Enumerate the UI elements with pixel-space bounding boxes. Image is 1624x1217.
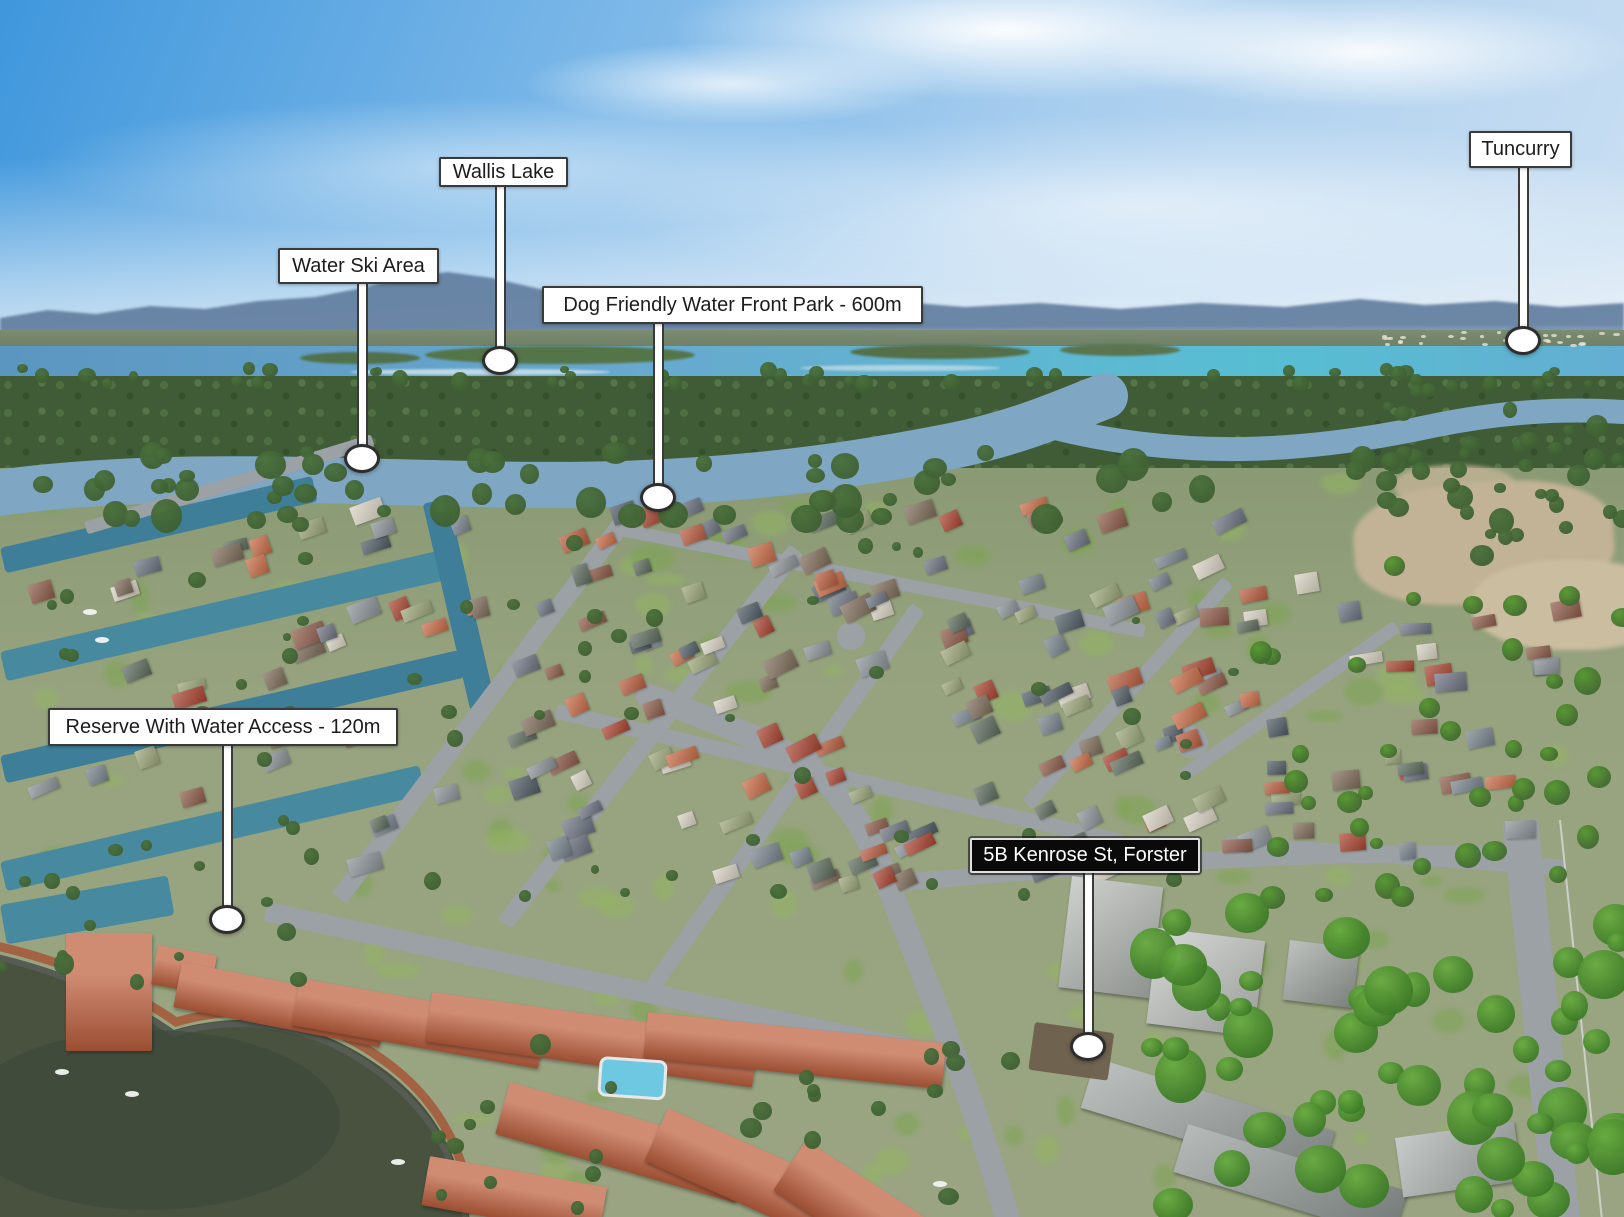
scene-shape — [1331, 769, 1360, 791]
scene-shape — [1519, 432, 1537, 448]
scene-shape — [1557, 341, 1563, 344]
scene-shape — [1391, 886, 1414, 907]
scene-shape — [1411, 719, 1438, 735]
scene-shape — [272, 476, 293, 496]
scene-shape — [54, 953, 74, 975]
callout-stem — [1518, 165, 1529, 344]
scene-shape — [1222, 838, 1253, 853]
scene-shape — [1338, 1090, 1363, 1114]
scene-shape — [1380, 744, 1397, 758]
scene-shape — [302, 454, 323, 475]
scene-shape — [666, 870, 678, 881]
scene-shape — [1031, 504, 1062, 534]
callout-label-box: Dog Friendly Water Front Park - 600m — [542, 286, 923, 324]
scene-shape — [624, 707, 639, 721]
scene-shape — [1578, 950, 1624, 999]
scene-shape — [1141, 1038, 1163, 1057]
callout-stem — [653, 321, 664, 501]
scene-shape — [44, 873, 59, 889]
scene-shape — [1337, 791, 1362, 813]
scene-shape — [1162, 1037, 1189, 1061]
callout-label: Wallis Lake — [453, 161, 555, 184]
scene-shape — [1250, 641, 1272, 664]
scene-shape — [1512, 778, 1535, 800]
scene-shape — [1199, 607, 1229, 627]
scene-shape — [794, 767, 812, 784]
scene-shape — [696, 455, 712, 471]
scene-shape — [141, 840, 152, 851]
scene-shape — [1491, 1199, 1514, 1217]
callout-label: Reserve With Water Access - 120m — [66, 716, 381, 739]
scene-shape — [1026, 367, 1043, 383]
scene-shape — [60, 589, 74, 604]
scene-shape — [725, 714, 734, 722]
scene-shape — [1549, 866, 1567, 884]
scene-shape — [1397, 761, 1424, 775]
scene-shape — [1216, 1057, 1242, 1081]
scene-shape — [1574, 667, 1601, 695]
scene-shape — [844, 376, 855, 386]
scene-shape — [472, 483, 492, 504]
scene-shape — [1433, 956, 1473, 993]
scene-shape — [1460, 505, 1474, 520]
scene-shape — [1505, 740, 1522, 759]
scene-shape — [282, 648, 298, 664]
scene-shape — [1239, 971, 1263, 990]
scene-detail-layer — [0, 0, 1624, 1217]
scene-shape — [1603, 505, 1616, 519]
scene-shape — [933, 1181, 947, 1187]
scene-shape — [1527, 1113, 1554, 1135]
scene-shape — [576, 487, 607, 518]
scene-shape — [519, 890, 531, 902]
scene-shape — [1049, 368, 1062, 382]
scene-shape — [1483, 376, 1498, 391]
scene-shape — [1292, 745, 1309, 763]
callout-label: 5B Kenrose St, Forster — [983, 844, 1186, 867]
scene-shape — [231, 376, 243, 386]
callout-stem — [1083, 870, 1094, 1050]
scene-shape — [883, 493, 897, 506]
callout-marker — [1070, 1032, 1106, 1061]
scene-shape — [194, 861, 205, 870]
scene-shape — [460, 600, 473, 614]
scene-shape — [946, 1054, 965, 1071]
callout-marker — [344, 444, 380, 473]
scene-shape — [1544, 780, 1570, 805]
scene-shape — [1228, 668, 1238, 677]
scene-shape — [740, 1118, 761, 1138]
callout-stem — [495, 184, 506, 364]
scene-shape — [505, 494, 526, 515]
scene-shape — [179, 470, 195, 483]
scene-shape — [1611, 608, 1624, 626]
scene-shape — [597, 1056, 668, 1101]
scene-shape — [1370, 838, 1383, 849]
scene-shape — [19, 876, 30, 887]
scene-shape — [560, 366, 568, 373]
scene-shape — [324, 463, 347, 482]
scene-shape — [1315, 888, 1333, 902]
scene-shape — [436, 1189, 447, 1201]
scene-shape — [66, 933, 152, 1051]
scene-shape — [1534, 656, 1559, 675]
scene-shape — [589, 1149, 603, 1164]
scene-shape — [808, 454, 823, 468]
scene-shape — [1400, 623, 1432, 635]
scene-shape — [1386, 661, 1414, 673]
scene-shape — [391, 1159, 405, 1165]
scene-shape — [611, 629, 626, 644]
scene-shape — [618, 504, 645, 528]
scene-shape — [243, 362, 255, 375]
scene-shape — [1559, 586, 1580, 606]
scene-shape — [1348, 657, 1366, 672]
scene-shape — [1566, 335, 1571, 338]
scene-shape — [94, 470, 115, 491]
scene-shape — [1031, 682, 1047, 696]
scene-shape — [1472, 1093, 1512, 1127]
scene-shape — [1570, 344, 1576, 347]
callout-label-box: Wallis Lake — [439, 157, 568, 187]
scene-shape — [1477, 1137, 1525, 1180]
scene-shape — [646, 609, 663, 627]
callout-label-box: 5B Kenrose St, Forster — [970, 838, 1200, 873]
scene-shape — [1505, 820, 1536, 839]
scene-shape — [392, 370, 408, 387]
callout-marker — [640, 483, 676, 512]
scene-shape — [807, 596, 818, 605]
scene-shape — [591, 865, 600, 874]
scene-shape — [1293, 823, 1314, 839]
callout-stem — [357, 281, 368, 462]
scene-shape — [125, 1091, 139, 1097]
scene-shape — [1446, 380, 1458, 391]
scene-shape — [924, 1048, 940, 1065]
scene-shape — [894, 830, 909, 843]
callout-label-box: Reserve With Water Access - 120m — [48, 708, 398, 746]
scene-shape — [1396, 446, 1412, 459]
scene-shape — [1153, 1188, 1193, 1217]
scene-shape — [484, 1176, 497, 1189]
scene-shape — [47, 600, 56, 610]
scene-shape — [1180, 771, 1190, 779]
scene-shape — [1503, 402, 1517, 417]
scene-shape — [530, 1034, 550, 1055]
scene-shape — [35, 368, 49, 383]
scene-shape — [1470, 545, 1494, 565]
scene-shape — [236, 679, 247, 690]
scene-shape — [1611, 453, 1624, 465]
scene-shape — [1559, 521, 1573, 534]
scene-shape — [1577, 825, 1599, 849]
scene-shape — [1292, 376, 1308, 391]
scene-shape — [713, 505, 736, 524]
scene-shape — [1265, 801, 1294, 814]
scene-shape — [1584, 448, 1605, 469]
scene-shape — [1513, 1036, 1538, 1062]
aerial-photo-stage: Wallis Lake Water Ski Area Dog Friendly … — [0, 0, 1624, 1217]
scene-shape — [480, 1100, 496, 1114]
scene-shape — [345, 480, 364, 500]
scene-shape — [1416, 642, 1437, 660]
scene-shape — [55, 1069, 69, 1075]
scene-shape — [151, 479, 167, 494]
scene-shape — [278, 815, 289, 826]
scene-shape — [294, 484, 317, 503]
scene-shape — [831, 453, 859, 478]
scene-shape — [1337, 600, 1361, 622]
scene-shape — [83, 609, 97, 615]
scene-shape — [1587, 766, 1611, 788]
scene-shape — [1599, 332, 1606, 335]
scene-shape — [1434, 672, 1467, 694]
scene-shape — [1556, 704, 1577, 726]
scene-shape — [1469, 787, 1491, 807]
scene-shape — [1413, 858, 1432, 875]
scene-shape — [791, 505, 821, 533]
scene-shape — [1399, 841, 1417, 860]
scene-shape — [579, 670, 591, 683]
callout-label: Dog Friendly Water Front Park - 600m — [563, 294, 901, 317]
scene-shape — [33, 476, 53, 494]
scene-shape — [571, 1201, 584, 1215]
scene-shape — [1502, 638, 1523, 661]
callout-marker — [1505, 326, 1541, 355]
scene-shape — [441, 705, 457, 719]
scene-shape — [520, 464, 539, 484]
scene-shape — [290, 972, 307, 986]
scene-shape — [1485, 529, 1496, 539]
scene-shape — [1301, 796, 1315, 810]
scene-shape — [1384, 556, 1405, 576]
scene-shape — [129, 371, 138, 381]
scene-shape — [855, 375, 872, 392]
scene-shape — [1323, 917, 1370, 959]
callout-marker — [209, 905, 245, 934]
scene-shape — [770, 884, 787, 899]
scene-shape — [1132, 617, 1140, 625]
scene-shape — [871, 508, 892, 525]
scene-shape — [1225, 893, 1269, 933]
scene-shape — [1460, 337, 1466, 340]
callout-label: Tuncurry — [1481, 138, 1559, 161]
callout-label-box: Tuncurry — [1469, 131, 1572, 168]
scene-shape — [1295, 1145, 1346, 1193]
scene-shape — [1267, 761, 1286, 776]
scene-shape — [447, 730, 464, 747]
scene-shape — [620, 888, 630, 897]
scene-shape — [188, 572, 206, 588]
scene-shape — [1397, 1065, 1441, 1107]
scene-shape — [1364, 966, 1413, 1015]
scene-shape — [1283, 365, 1295, 377]
scene-shape — [1613, 333, 1620, 336]
scene-shape — [1162, 909, 1191, 936]
scene-shape — [1546, 340, 1551, 343]
scene-shape — [1532, 378, 1545, 389]
scene-shape — [1419, 698, 1439, 718]
scene-shape — [1477, 995, 1515, 1033]
scene-shape — [858, 538, 874, 554]
scene-shape — [1509, 528, 1524, 542]
scene-shape — [17, 364, 28, 373]
scene-shape — [585, 1166, 601, 1182]
scene-shape — [257, 752, 272, 766]
scene-shape — [102, 378, 112, 389]
scene-shape — [1567, 465, 1589, 486]
scene-shape — [66, 886, 79, 900]
scene-shape — [1166, 872, 1182, 887]
scene-shape — [430, 495, 461, 527]
scene-shape — [1214, 1150, 1250, 1187]
scene-shape — [1455, 843, 1481, 869]
scene-shape — [1540, 747, 1557, 761]
scene-shape — [1548, 442, 1562, 454]
scene-shape — [286, 821, 299, 835]
scene-shape — [1388, 498, 1409, 517]
scene-shape — [587, 609, 603, 625]
scene-shape — [95, 637, 109, 643]
scene-shape — [1243, 1112, 1285, 1148]
scene-shape — [1494, 483, 1505, 493]
scene-shape — [605, 1081, 618, 1094]
scene-shape — [1503, 595, 1527, 617]
scene-shape — [1350, 818, 1369, 837]
scene-shape — [1455, 1176, 1493, 1213]
scene-shape — [1459, 448, 1470, 459]
scene-shape — [1448, 335, 1454, 338]
scene-shape — [1294, 571, 1320, 594]
scene-shape — [1346, 461, 1366, 480]
callout-marker — [482, 346, 518, 375]
scene-shape — [1545, 1060, 1571, 1081]
scene-shape — [1463, 596, 1484, 614]
scene-shape — [370, 368, 378, 376]
scene-shape — [261, 897, 273, 907]
scene-shape — [1018, 888, 1030, 901]
scene-shape — [806, 468, 825, 483]
scene-shape — [255, 451, 286, 479]
scene-shape — [1586, 415, 1608, 438]
scene-shape — [1180, 739, 1192, 749]
scene-shape — [123, 510, 140, 527]
scene-shape — [799, 1070, 814, 1084]
scene-shape — [1329, 368, 1341, 378]
scene-shape — [1383, 402, 1393, 410]
scene-shape — [1229, 998, 1252, 1016]
scene-shape — [464, 1119, 475, 1131]
scene-shape — [547, 376, 558, 388]
scene-shape — [84, 920, 96, 931]
callout-label: Water Ski Area — [292, 255, 425, 278]
scene-shape — [446, 1138, 464, 1153]
scene-shape — [451, 372, 468, 391]
scene-shape — [1497, 331, 1501, 334]
scene-shape — [804, 1131, 821, 1150]
scene-shape — [1266, 717, 1288, 738]
scene-shape — [753, 1102, 772, 1121]
callout-label-box: Water Ski Area — [278, 248, 439, 284]
scene-shape — [943, 374, 960, 390]
scene-shape — [1421, 383, 1436, 397]
scene-shape — [292, 517, 309, 532]
scene-shape — [1339, 1164, 1389, 1208]
callout-stem — [222, 743, 233, 923]
